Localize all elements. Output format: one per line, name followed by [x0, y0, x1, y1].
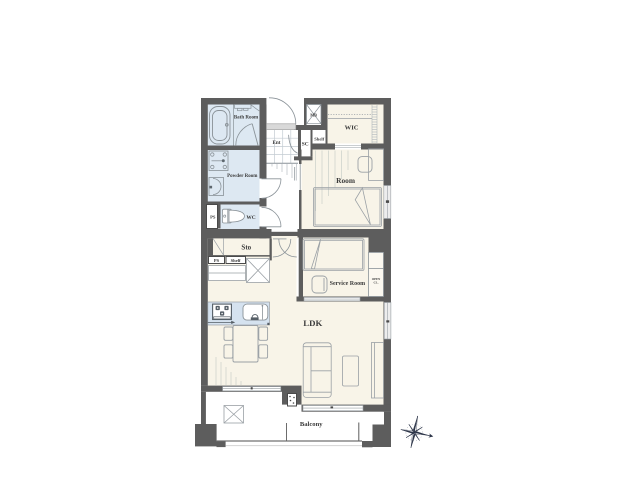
svg-text:Ent: Ent [272, 140, 280, 146]
svg-text:Powder Room: Powder Room [227, 174, 258, 179]
svg-text:Shelf: Shelf [231, 258, 241, 263]
svg-text:Sto: Sto [241, 243, 251, 251]
svg-text:MB: MB [310, 113, 317, 118]
svg-text:PS: PS [214, 258, 220, 263]
svg-text:WC: WC [246, 215, 255, 221]
svg-text:Bath Room: Bath Room [234, 116, 259, 121]
svg-text:Balcony: Balcony [300, 421, 323, 428]
svg-text:CL.: CL. [373, 281, 378, 285]
svg-text:LDK: LDK [303, 318, 322, 328]
svg-text:WIC: WIC [345, 124, 359, 131]
svg-text:Room: Room [336, 176, 356, 185]
svg-text:Shelf: Shelf [314, 136, 324, 141]
svg-text:SC: SC [302, 142, 309, 148]
svg-text:PS: PS [210, 215, 216, 220]
svg-text:Service Room: Service Room [330, 281, 366, 287]
